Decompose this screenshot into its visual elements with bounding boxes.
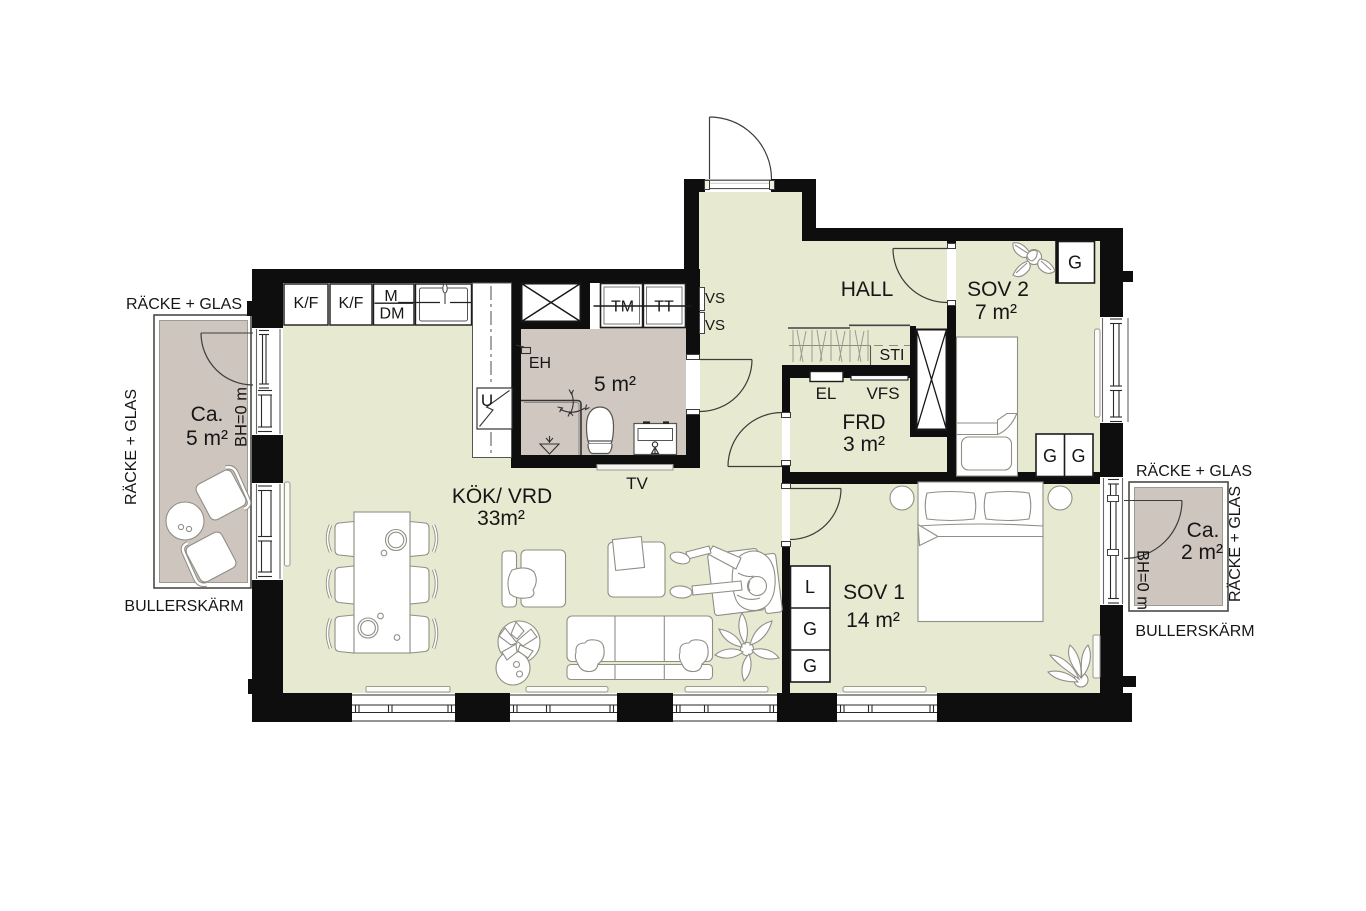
- svg-text:G: G: [803, 656, 817, 676]
- svg-text:BH=0 m: BH=0 m: [1134, 550, 1152, 610]
- svg-text:RÄCKE + GLAS: RÄCKE + GLAS: [122, 389, 140, 505]
- svg-text:VS: VS: [705, 317, 725, 334]
- svg-text:BH=0 m: BH=0 m: [233, 387, 251, 447]
- svg-text:RÄCKE + GLAS: RÄCKE + GLAS: [126, 295, 242, 313]
- svg-text:3 m²: 3 m²: [843, 433, 885, 456]
- svg-text:TM: TM: [611, 299, 634, 316]
- svg-text:BULLERSKÄRM: BULLERSKÄRM: [124, 597, 243, 615]
- svg-text:G: G: [1043, 446, 1057, 466]
- svg-text:BULLERSKÄRM: BULLERSKÄRM: [1135, 622, 1254, 640]
- svg-text:TV: TV: [626, 474, 648, 493]
- svg-text:SOV 2: SOV 2: [967, 278, 1029, 301]
- svg-text:RÄCKE + GLAS: RÄCKE + GLAS: [1136, 462, 1252, 480]
- svg-text:5 m²: 5 m²: [594, 373, 636, 396]
- svg-text:G: G: [803, 619, 817, 639]
- svg-text:7 m²: 7 m²: [975, 301, 1017, 324]
- svg-text:RÄCKE + GLAS: RÄCKE + GLAS: [1226, 486, 1244, 602]
- svg-text:FRD: FRD: [842, 411, 885, 434]
- svg-text:SOV 1: SOV 1: [843, 581, 905, 604]
- svg-text:K/F: K/F: [294, 295, 319, 312]
- svg-text:TT: TT: [654, 299, 674, 316]
- svg-text:2 m²: 2 m²: [1181, 541, 1223, 564]
- svg-text:M: M: [384, 288, 397, 305]
- svg-text:14 m²: 14 m²: [846, 609, 900, 632]
- svg-text:HALL: HALL: [841, 278, 894, 301]
- svg-text:DM: DM: [380, 306, 405, 323]
- svg-text:U: U: [481, 391, 493, 410]
- svg-text:G: G: [1068, 253, 1082, 273]
- svg-text:K/F: K/F: [339, 295, 364, 312]
- svg-text:EH: EH: [529, 355, 551, 372]
- svg-text:G: G: [1071, 446, 1085, 466]
- svg-text:VFS: VFS: [866, 384, 899, 403]
- svg-text:Ca.: Ca.: [191, 403, 224, 426]
- svg-text:EL: EL: [816, 384, 837, 403]
- svg-text:STI: STI: [880, 347, 905, 364]
- svg-text:L: L: [805, 577, 815, 597]
- svg-text:VS: VS: [705, 290, 725, 307]
- svg-text:Ca.: Ca.: [1187, 519, 1220, 542]
- svg-text:33m²: 33m²: [477, 507, 525, 530]
- svg-text:KÖK/ VRD: KÖK/ VRD: [452, 485, 552, 508]
- svg-text:5 m²: 5 m²: [186, 427, 228, 450]
